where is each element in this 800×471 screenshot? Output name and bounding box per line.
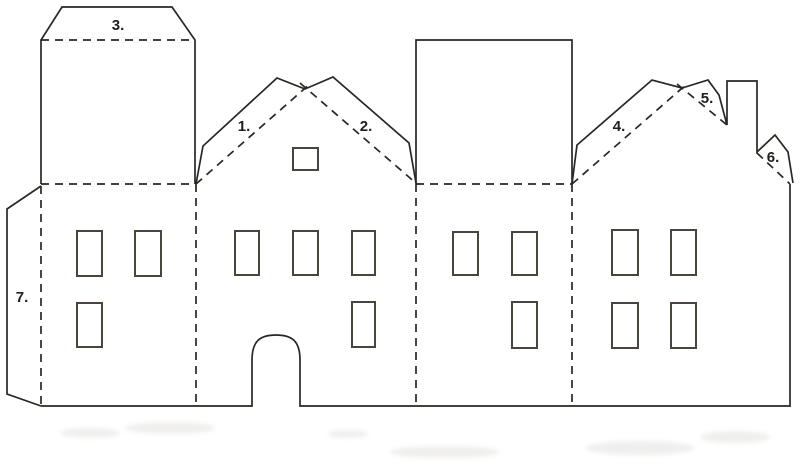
wall4-window-upper-right <box>671 230 696 275</box>
cut-lines <box>7 7 793 406</box>
papercraft-template-page: 1.2.3.4.5.6.7. <box>0 0 800 471</box>
part-label-7: 7. <box>16 289 29 306</box>
paper-house-template-drawing: 1.2.3.4.5.6.7. <box>0 0 800 471</box>
wall1-window-upper-left <box>77 231 102 276</box>
middle-roof-flap-outline <box>196 77 416 184</box>
watermark-smudge <box>700 431 770 443</box>
wall4-window-lower-left <box>612 303 638 348</box>
wall2-window-upper-2 <box>293 231 318 275</box>
part-number-labels: 1.2.3.4.5.6.7. <box>16 17 780 306</box>
wall1-window-lower <box>77 303 102 347</box>
watermark-smudge <box>328 430 368 438</box>
right-roof-flap-chimney-outline <box>572 80 793 184</box>
watermark-smudge <box>125 422 215 434</box>
wall2-window-upper-3 <box>352 231 375 275</box>
wall1-window-upper-right <box>135 231 161 276</box>
part-label-2: 2. <box>360 118 373 135</box>
wall3-window-upper-right <box>512 232 537 275</box>
wall4-window-lower-right <box>671 303 696 348</box>
watermark-smudges <box>60 422 770 458</box>
wall2-gable-window <box>293 148 318 170</box>
window-cutouts <box>77 148 696 348</box>
wall3-window-lower <box>512 302 537 348</box>
part-label-1: 1. <box>238 118 251 135</box>
wall2-window-upper-1 <box>235 231 259 275</box>
watermark-smudge <box>60 428 120 438</box>
wall2-window-lower <box>352 302 375 347</box>
part-label-3: 3. <box>112 17 125 34</box>
watermark-smudge <box>585 441 695 455</box>
flat-roof-panel-outline <box>416 40 572 184</box>
part-label-6: 6. <box>767 149 780 166</box>
part-label-5: 5. <box>701 90 714 107</box>
part-label-4: 4. <box>613 118 626 135</box>
watermark-smudge <box>390 446 500 458</box>
wall3-window-upper-left <box>453 232 478 275</box>
wall4-window-upper-left <box>612 230 638 275</box>
